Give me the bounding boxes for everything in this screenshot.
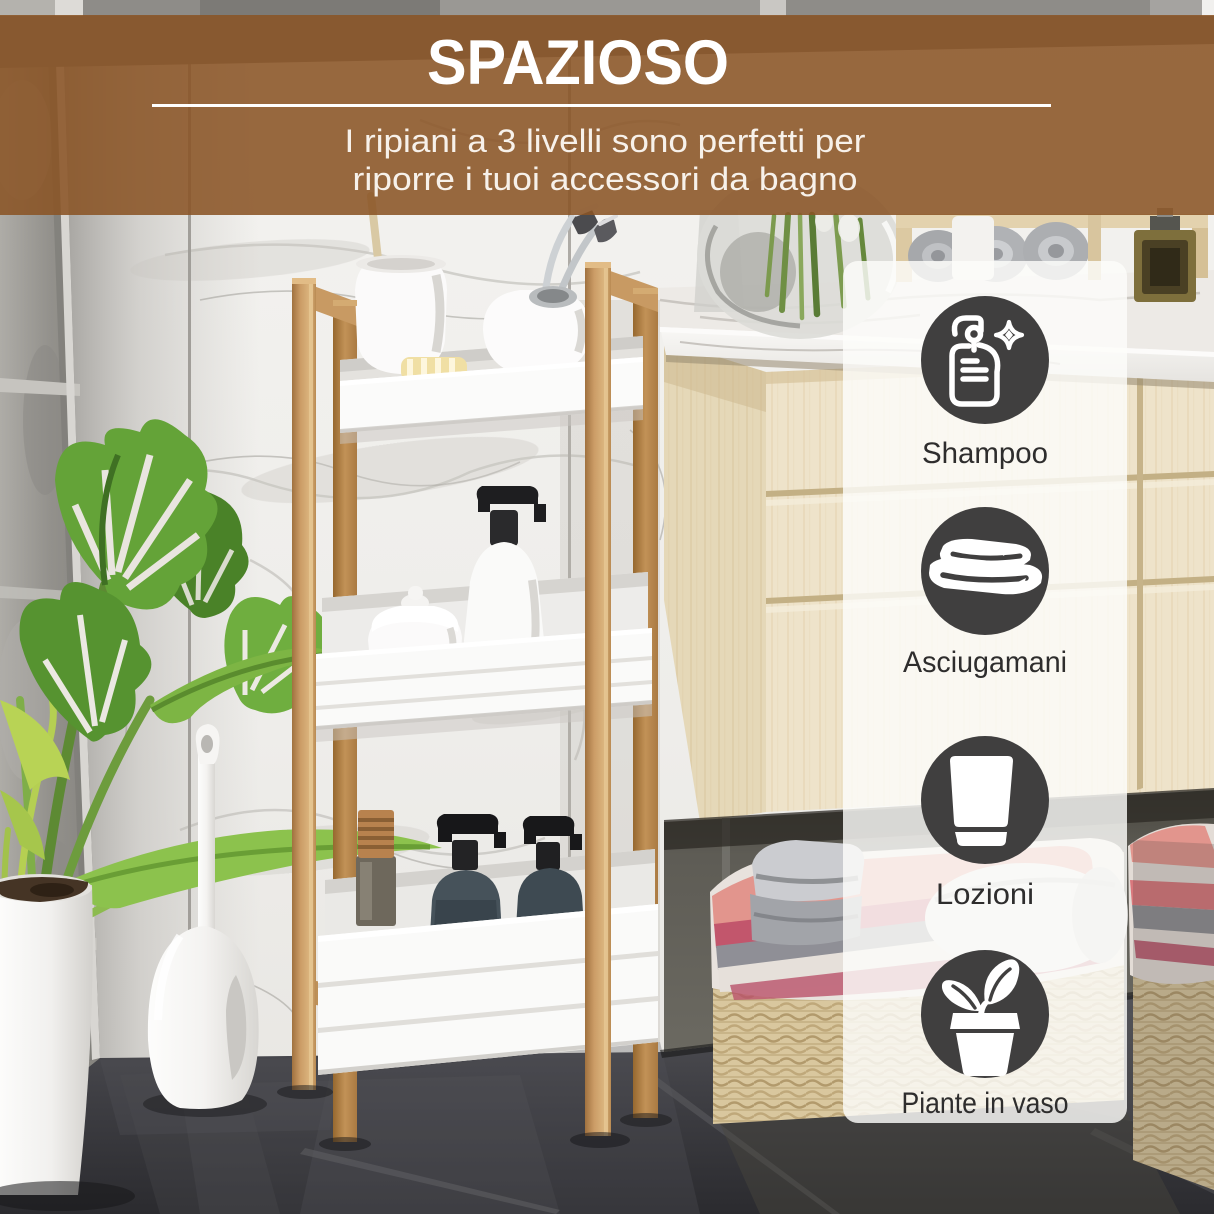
svg-text:Asciugamani: Asciugamani (903, 646, 1067, 679)
svg-text:Shampoo: Shampoo (922, 437, 1048, 470)
svg-text:I ripiani a 3 livelli sono per: I ripiani a 3 livelli sono perfetti per (345, 123, 866, 159)
svg-text:Piante in vaso: Piante in vaso (902, 1087, 1069, 1120)
svg-text:SPAZIOSO: SPAZIOSO (427, 28, 729, 98)
svg-text:Lozioni: Lozioni (936, 878, 1034, 911)
svg-text:riporre i tuoi accessori da ba: riporre i tuoi accessori da bagno (353, 161, 858, 197)
